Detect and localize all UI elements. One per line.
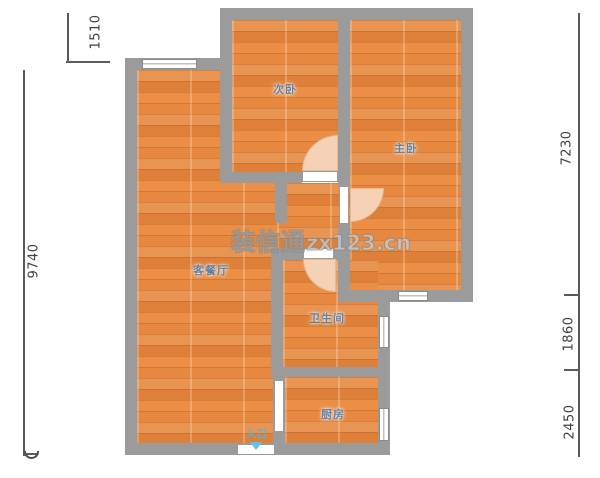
window-bathroom-right-icon bbox=[379, 316, 389, 348]
label-master-bedroom: 主卧 bbox=[394, 140, 418, 156]
wall-bedroom-divider-upper bbox=[338, 8, 350, 187]
floor-plan: 次卧 主卧 客餐厅 卫生间 厨房 入口 装信通zx123.cn 1510 974… bbox=[0, 0, 600, 478]
dimension-right-7230: 7230 bbox=[560, 130, 575, 165]
ruler-right-tick-1 bbox=[564, 294, 580, 296]
wall-bathroom-kitchen-divider bbox=[271, 367, 388, 377]
window-living-top-icon bbox=[142, 59, 197, 69]
label-bathroom: 卫生间 bbox=[309, 310, 345, 326]
ruler-right-tick-2 bbox=[564, 369, 580, 371]
wall-secondary-bedroom-left bbox=[220, 8, 232, 183]
dimension-left-1510: 1510 bbox=[89, 14, 104, 49]
wall-master-bedroom-right bbox=[461, 8, 473, 302]
door-master-bedroom bbox=[339, 186, 349, 224]
dimension-left-9740: 9740 bbox=[27, 243, 42, 278]
entrance-label: 入口 bbox=[246, 426, 268, 441]
dimension-right-1860: 1860 bbox=[562, 316, 577, 351]
ruler-left-upper-line bbox=[67, 13, 69, 62]
label-secondary-bedroom: 次卧 bbox=[273, 81, 297, 97]
watermark: 装信通zx123.cn bbox=[231, 222, 411, 257]
watermark-brand: 装信通 bbox=[231, 228, 306, 256]
entrance-arrow-icon bbox=[250, 442, 262, 450]
wall-secondary-bedroom-bottom bbox=[220, 172, 302, 183]
label-living-dining: 客餐厅 bbox=[193, 262, 229, 278]
ruler-right-line bbox=[578, 13, 580, 457]
label-kitchen: 厨房 bbox=[321, 406, 345, 422]
door-kitchen bbox=[274, 380, 284, 432]
ruler-left-tick bbox=[66, 61, 110, 63]
wall-bathroom-left bbox=[271, 248, 283, 377]
wall-hallway-left bbox=[275, 183, 287, 223]
ruler-left-lower-line bbox=[23, 70, 25, 456]
watermark-site: zx123.cn bbox=[306, 231, 411, 255]
window-master-bottom-icon bbox=[398, 291, 428, 301]
dimension-right-2450: 2450 bbox=[563, 404, 578, 439]
window-kitchen-right-icon bbox=[379, 408, 389, 441]
wall-living-left bbox=[125, 58, 137, 455]
ruler-left-bottom-tick bbox=[23, 453, 37, 455]
door-secondary-bedroom bbox=[302, 171, 338, 182]
